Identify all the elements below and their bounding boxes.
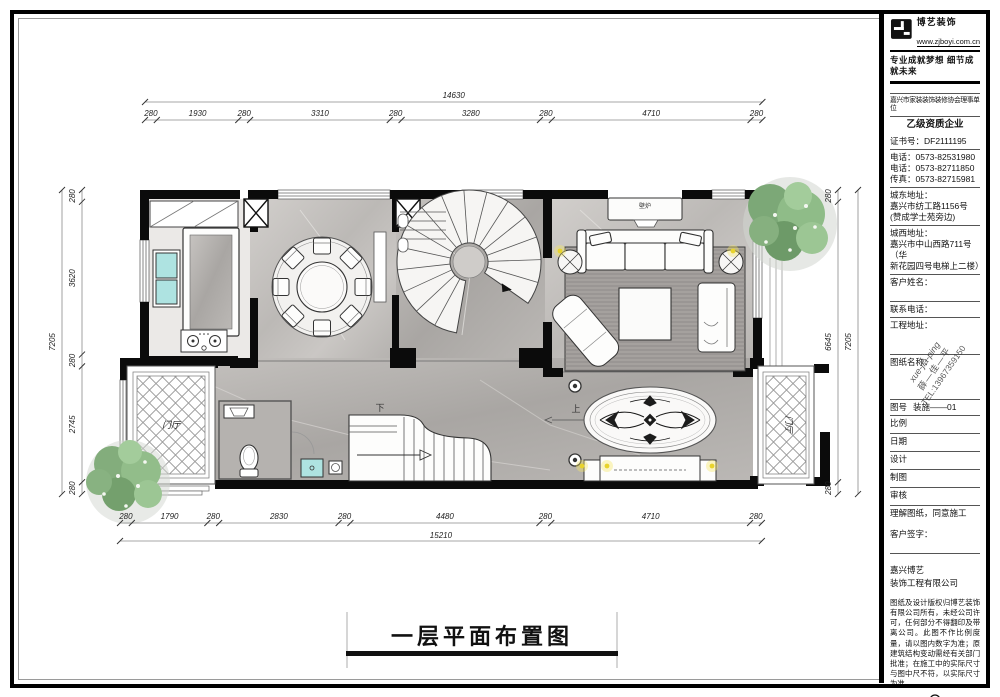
brand-name: 博艺装饰 xyxy=(917,17,980,29)
brand-website: www.zjboyi.com.cn xyxy=(917,37,980,48)
compass-icon: A B C D xyxy=(916,694,954,697)
brand-slogan: 专业成就梦想 细节成就未来 xyxy=(890,52,980,83)
fax: 传真：0573-82715981 xyxy=(890,174,980,185)
svg-text:280: 280 xyxy=(236,109,251,118)
entry-hall-right: 门厅 xyxy=(758,366,814,484)
svg-text:2745: 2745 xyxy=(68,415,77,434)
draft-field: 制图 xyxy=(890,470,980,488)
svg-text:280: 280 xyxy=(749,109,764,118)
svg-text:280: 280 xyxy=(206,512,221,521)
association-line: 嘉兴市家装装饰装修协会理事单位 xyxy=(890,93,980,118)
review-field: 审核 xyxy=(890,488,980,506)
design-field: 设计 xyxy=(890,452,980,470)
svg-text:3280: 3280 xyxy=(462,109,480,118)
svg-text:280: 280 xyxy=(538,512,553,521)
entry-right-label: 门厅 xyxy=(784,415,794,434)
phone-1: 电话：0573-82531980 xyxy=(890,152,980,163)
window-top-3 xyxy=(712,190,745,199)
svg-text:4710: 4710 xyxy=(642,512,660,521)
svg-text:3310: 3310 xyxy=(311,109,329,118)
project-address-field: 工程地址： xyxy=(890,318,980,355)
address-east: 城东地址： 嘉兴市纺工路1156号 (赞成学士苑旁边) xyxy=(890,188,980,226)
contacts: 电话：0573-82531980 电话：0573-82711850 传真：057… xyxy=(890,150,980,188)
down-label: 下 xyxy=(375,403,384,413)
date-field: 日期 xyxy=(890,434,980,452)
drawing-no-label: 图号 xyxy=(890,402,907,413)
tree-top-right xyxy=(743,177,837,271)
entry-left-label: 门厅 xyxy=(162,420,182,430)
up-label: 上 xyxy=(571,404,580,414)
drawing-no-field: 图号 装施——01 xyxy=(890,400,980,416)
company-name: 嘉兴博艺 装饰工程有限公司 xyxy=(890,562,980,592)
contact-phone-field: 联系电话： xyxy=(890,302,980,318)
sheet-title-area: 一层平面布置图 xyxy=(346,612,618,668)
north-compass: A B C D xyxy=(890,694,980,697)
address-east-1: 嘉兴市纺工路1156号 xyxy=(890,201,980,212)
scale-field: 比例 xyxy=(890,416,980,434)
drawing-name-field: 图纸名称： xyxy=(890,355,980,400)
drawing-sheet: 壁炉 xyxy=(0,0,1000,697)
disclaimer: 图纸及设计版权归博艺装饰有限公司所有，未经公司许可，任何部分不得翻印及带离公司。… xyxy=(890,598,980,690)
customer-name-field: 客户姓名： xyxy=(890,275,980,302)
brand-header: 博艺装饰 www.zjboyi.com.cn xyxy=(890,17,980,52)
address-east-label: 城东地址： xyxy=(890,190,980,201)
svg-text:280: 280 xyxy=(824,481,833,496)
coffee-table xyxy=(619,288,671,340)
window-left xyxy=(140,240,149,302)
svg-text:280: 280 xyxy=(748,512,763,521)
grade-line: 乙级资质企业 xyxy=(890,117,980,133)
svg-text:6645: 6645 xyxy=(824,333,833,351)
sheet-title: 一层平面布置图 xyxy=(391,624,573,649)
title-underline xyxy=(346,651,618,656)
address-east-2: (赞成学士苑旁边) xyxy=(890,212,980,223)
svg-text:280: 280 xyxy=(538,109,553,118)
svg-text:1790: 1790 xyxy=(161,512,179,521)
svg-text:280: 280 xyxy=(68,353,77,368)
oval-medallion xyxy=(584,387,716,453)
svg-text:2830: 2830 xyxy=(269,512,288,521)
svg-text:3620: 3620 xyxy=(68,269,77,287)
kitchen-sink xyxy=(153,250,180,307)
address-west-2: 新花园四号电梯上二楼） xyxy=(890,261,980,272)
svg-text:280: 280 xyxy=(337,512,352,521)
fireplace-label: 壁炉 xyxy=(639,202,651,210)
floor-plan: 壁炉 xyxy=(0,0,1000,697)
window-top-1 xyxy=(278,190,390,199)
svg-text:280: 280 xyxy=(68,189,77,204)
drawing-no-value: 装施——01 xyxy=(913,402,956,413)
svg-text:4710: 4710 xyxy=(642,109,660,118)
address-west-1: 嘉兴市中山西路711号（华 xyxy=(890,239,980,261)
company-line-2: 装饰工程有限公司 xyxy=(890,577,980,590)
boyi-logo-icon xyxy=(890,17,914,41)
svg-text:14630: 14630 xyxy=(443,91,466,100)
stove xyxy=(181,330,227,352)
phone-2: 电话：0573-82711850 xyxy=(890,163,980,174)
svg-text:15210: 15210 xyxy=(430,531,453,540)
svg-text:280: 280 xyxy=(143,109,158,118)
svg-text:1930: 1930 xyxy=(189,109,207,118)
company-line-1: 嘉兴博艺 xyxy=(890,564,980,577)
signature-field: 客户签字： xyxy=(890,527,980,554)
svg-text:7205: 7205 xyxy=(844,333,853,351)
toilet xyxy=(240,445,258,477)
address-west: 城西地址： 嘉兴市中山西路711号（华 新花园四号电梯上二楼） xyxy=(890,226,980,275)
sofa xyxy=(577,230,713,273)
address-west-label: 城西地址： xyxy=(890,228,980,239)
bathroom-sink xyxy=(224,405,254,418)
svg-text:7205: 7205 xyxy=(48,333,57,351)
svg-text:280: 280 xyxy=(118,512,133,521)
svg-text:4480: 4480 xyxy=(436,512,454,521)
svg-text:280: 280 xyxy=(824,189,833,204)
agree-line: 理解图纸，同意施工 xyxy=(890,506,980,521)
svg-text:280: 280 xyxy=(388,109,403,118)
svg-text:280: 280 xyxy=(68,481,77,496)
armchair xyxy=(698,283,735,352)
corridor-sink xyxy=(301,459,342,477)
title-block: 博艺装饰 www.zjboyi.com.cn 专业成就梦想 细节成就未来 嘉兴市… xyxy=(879,14,984,683)
cert-line: 证书号：DF2111195 xyxy=(890,134,980,150)
